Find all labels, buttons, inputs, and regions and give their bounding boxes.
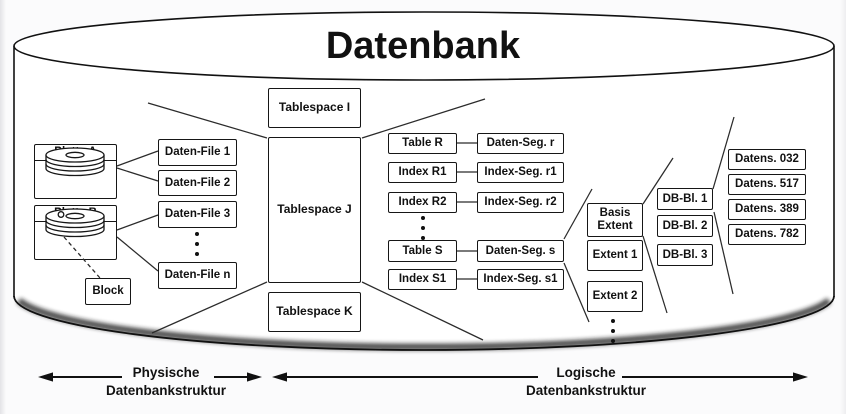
box-index-seg-s1: Index-Seg. s1 <box>477 269 564 290</box>
datens-517-label: Datens. 517 <box>735 178 799 191</box>
index-r2-label: Index R2 <box>399 196 447 209</box>
box-index-seg-r1: Index-Seg. r1 <box>477 162 564 183</box>
daten-seg-r-label: Daten-Seg. r <box>487 137 555 150</box>
box-datens-782: Datens. 782 <box>728 224 806 245</box>
box-daten-seg-r: Daten-Seg. r <box>477 133 564 154</box>
legend-physical-structure: Physische Datenbankstruktur <box>66 364 266 400</box>
index-seg-r2-label: Index-Seg. r2 <box>484 196 556 209</box>
box-daten-file-2: Daten-File 2 <box>158 170 237 196</box>
box-datens-389: Datens. 389 <box>728 199 806 220</box>
database-title: Datenbank <box>0 25 846 68</box>
box-index-r1: Index R1 <box>388 162 457 183</box>
db-bl-2-label: DB-Bl. 2 <box>663 220 708 233</box>
box-index-r2: Index R2 <box>388 192 457 213</box>
disk-stack-icon <box>35 145 115 182</box>
box-tablespace-k: Tablespace K <box>268 292 361 332</box>
extent-2-label: Extent 2 <box>593 290 638 303</box>
box-tablespace-i: Tablespace I <box>268 88 361 128</box>
basis-extent-label: Basis Extent <box>590 207 640 233</box>
index-r1-label: Index R1 <box>399 166 447 179</box>
daten-file-1-label: Daten-File 1 <box>165 146 230 159</box>
diagram-canvas: Datenbank Platte A Platte B <box>0 0 846 414</box>
box-table-r: Table R <box>388 133 457 154</box>
box-block: Block <box>85 278 131 305</box>
legend-logical-structure: Logische Datenbankstruktur <box>466 364 706 400</box>
box-extent-1: Extent 1 <box>587 240 643 271</box>
extent-1-label: Extent 1 <box>593 249 638 262</box>
tablespace-j-label: Tablespace J <box>277 203 351 216</box>
box-daten-file-3: Daten-File 3 <box>158 201 237 228</box>
datens-389-label: Datens. 389 <box>735 203 799 216</box>
index-seg-r1-label: Index-Seg. r1 <box>484 166 556 179</box>
box-table-s: Table S <box>388 240 457 262</box>
box-index-s1: Index S1 <box>388 269 457 290</box>
daten-file-n-label: Daten-File n <box>165 269 231 282</box>
box-daten-seg-s: Daten-Seg. s <box>477 240 564 262</box>
box-db-bl-2: DB-Bl. 2 <box>657 215 713 237</box>
index-seg-s1-label: Index-Seg. s1 <box>483 273 557 286</box>
box-basis-extent: Basis Extent <box>587 203 643 237</box>
tablespace-k-label: Tablespace K <box>276 305 352 318</box>
block-label: Block <box>92 285 123 298</box>
legend-logical-line2: Datenbankstruktur <box>466 382 706 400</box>
datens-782-label: Datens. 782 <box>735 228 799 241</box>
table-r-label: Table R <box>402 137 443 150</box>
box-db-bl-1: DB-Bl. 1 <box>657 188 713 210</box>
datens-032-label: Datens. 032 <box>735 153 799 166</box>
legend-logical-line1: Logische <box>466 364 706 382</box>
box-db-bl-3: DB-Bl. 3 <box>657 244 713 266</box>
table-s-label: Table S <box>402 245 442 258</box>
db-bl-3-label: DB-Bl. 3 <box>663 249 708 262</box>
daten-seg-s-label: Daten-Seg. s <box>486 245 556 258</box>
box-datens-032: Datens. 032 <box>728 149 806 170</box>
box-extent-2: Extent 2 <box>587 281 643 312</box>
daten-file-2-label: Daten-File 2 <box>165 177 230 190</box>
box-datens-517: Datens. 517 <box>728 174 806 195</box>
box-index-seg-r2: Index-Seg. r2 <box>477 192 564 213</box>
box-daten-file-1: Daten-File 1 <box>158 139 237 166</box>
box-platte-b: Platte B <box>34 205 117 260</box>
legend-physical-line1: Physische <box>66 364 266 382</box>
disk-stack-icon <box>35 206 115 243</box>
box-tablespace-j: Tablespace J <box>268 137 361 283</box>
box-daten-file-n: Daten-File n <box>158 262 237 289</box>
db-bl-1-label: DB-Bl. 1 <box>663 193 708 206</box>
index-s1-label: Index S1 <box>399 273 446 286</box>
daten-file-3-label: Daten-File 3 <box>165 208 230 221</box>
box-platte-a: Platte A <box>34 144 117 199</box>
legend-physical-line2: Datenbankstruktur <box>66 382 266 400</box>
tablespace-i-label: Tablespace I <box>279 101 350 114</box>
